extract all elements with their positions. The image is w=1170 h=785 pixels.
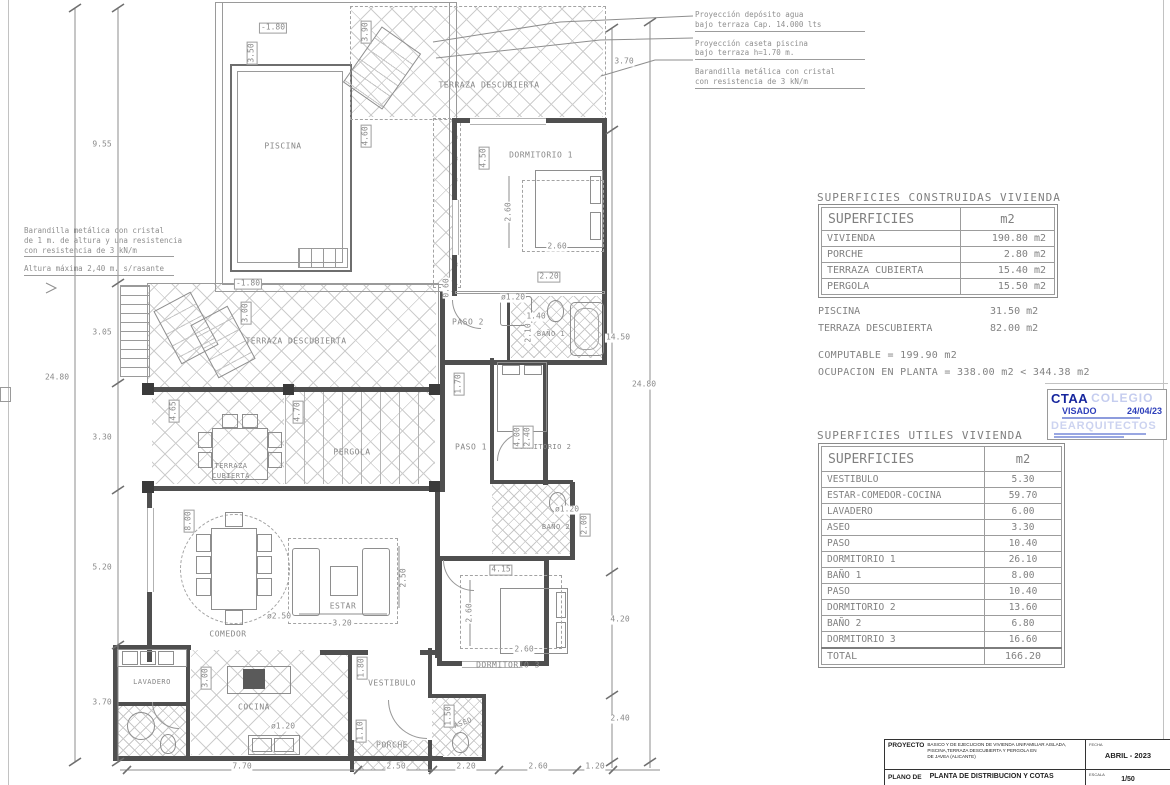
constructed-areas-title: SUPERFICIES CONSTRUIDAS VIVIENDA: [817, 191, 1061, 204]
table-cell: 10.40: [985, 584, 1062, 600]
dimension-label: 3.50: [247, 41, 258, 64]
dimension-label: 0.60: [443, 277, 452, 298]
table-row: LAVADERO6.00: [822, 504, 1062, 520]
room-label: ESTAR: [330, 602, 357, 611]
table-cell: 13.60: [985, 600, 1062, 616]
annotation-group: Barandilla metálica con cristalde 1 m. d…: [24, 226, 174, 257]
table-cell: DORMITORIO 3: [822, 632, 985, 649]
room-label: PASO 1: [455, 443, 487, 452]
table-row: TERRAZA CUBIERTA15.40 m2: [822, 263, 1055, 279]
annotation-line: Altura máxima 2,40 m. s/rasante: [24, 264, 174, 274]
table-cell: TERRAZA CUBIERTA: [822, 263, 961, 279]
fecha-value: ABRIL - 2023: [1086, 751, 1170, 760]
table-cell: BAÑO 2: [822, 616, 985, 632]
table-row: PERGOLA15.50 m2: [822, 279, 1055, 295]
table-cell: 2.80 m2: [961, 247, 1055, 263]
constructed-areas-table-frame: SUPERFICIESm2VIVIENDA190.80 m2PORCHE2.80…: [818, 204, 1058, 298]
dimension-label: 4.15: [489, 565, 512, 576]
table-row: PORCHE2.80 m2: [822, 247, 1055, 263]
stamp-smallprint-bar: [1062, 417, 1140, 419]
table-header-cell: SUPERFICIES: [822, 208, 961, 231]
table-cell: DORMITORIO 2: [822, 600, 985, 616]
table-row: DORMITORIO 316.60: [822, 632, 1062, 649]
table-cell: 3.30: [985, 520, 1062, 536]
room-label: TERRAZA DESCUBIERTA: [438, 81, 539, 90]
dimension-label: 24.80: [44, 374, 70, 383]
annotation-group: Altura máxima 2,40 m. s/rasante: [24, 264, 174, 276]
table-cell: 15.50 m2: [961, 279, 1055, 295]
table-cell: ESTAR-COMEDOR-COCINA: [822, 488, 985, 504]
stamp-watermark-top: COLEGIO: [1091, 391, 1153, 405]
ocupacion-note: OCUPACION EN PLANTA = 338.00 m2 < 344.38…: [818, 367, 1090, 378]
dimension-label: 2.60: [466, 602, 475, 623]
useful-areas-table-frame: SUPERFICIESm2VESTIBULO5.30ESTAR-COMEDOR-…: [818, 443, 1065, 668]
floor-plan: PISCINATERRAZA DESCUBIERTATERRAZA DESCUB…: [0, 0, 720, 785]
stamp-watermark-bottom: DEARQUITECTOS: [1048, 420, 1166, 432]
annotation-group: Barandilla metálica con cristalcon resis…: [695, 67, 865, 89]
dimension-label: 2.60: [505, 201, 514, 222]
table-row: PASO10.40: [822, 584, 1062, 600]
room-label: PASO 2: [452, 318, 484, 327]
dimension-label: 9.55: [91, 141, 112, 150]
table-row: DORMITORIO 126.10: [822, 552, 1062, 568]
dimension-label: 4.70: [293, 400, 304, 423]
dimension-label: 1.40: [525, 313, 546, 322]
dimension-label: 2.00: [580, 513, 591, 536]
annotation-line: de 1 m. de altura y una resistencia: [24, 236, 174, 246]
terraza-area-row: TERRAZA DESCUBIERTA 82.00 m2: [818, 323, 1038, 334]
dimension-label: 3.30: [91, 434, 112, 443]
floor-plan-sheet: PISCINATERRAZA DESCUBIERTATERRAZA DESCUB…: [0, 0, 1170, 785]
computable-note: COMPUTABLE = 199.90 m2: [818, 350, 957, 361]
table-cell: 26.10: [985, 552, 1062, 568]
annotation-line: Barandilla metálica con cristal: [695, 67, 865, 77]
dimension-label: 14.50: [605, 334, 631, 343]
table-row: TOTAL166.20: [822, 648, 1062, 665]
table-cell: LAVADERO: [822, 504, 985, 520]
dimension-label: 1.20: [584, 763, 605, 772]
dimension-label: 2.60: [527, 763, 548, 772]
project-description: BASICO Y DE EJECUCION DE VIVIENDA UNIFAM…: [927, 742, 1066, 767]
annotation-line: bajo terraza h=1.70 m.: [695, 48, 865, 58]
dimension-label: ø2.50: [266, 613, 292, 622]
project-line: DE JAVEA (ALICANTE): [927, 754, 1066, 760]
dimension-label: 1.70: [454, 372, 465, 395]
terraza-value: 82.00 m2: [990, 323, 1038, 334]
dimension-label: 4.65: [169, 399, 180, 422]
dimension-label: 2.50: [385, 763, 406, 772]
room-label: PISCINA: [264, 142, 301, 151]
dimension-label: 3.70: [91, 699, 112, 708]
annotation-line: Barandilla metálica con cristal: [24, 226, 174, 236]
annotation-line: con resistencia de 3 kN/m: [24, 246, 174, 256]
table-cell: 16.60: [985, 632, 1062, 649]
stamp-visado-label: VISADO: [1062, 406, 1097, 416]
room-label: DORMITORIO 1: [509, 151, 573, 160]
dimension-label: 4.60: [361, 124, 372, 147]
dimension-label: 4.50: [479, 146, 490, 169]
table-row: VIVIENDA190.80 m2: [822, 231, 1055, 247]
dimension-label: 2.20: [537, 272, 560, 283]
table-row: BAÑO 26.80: [822, 616, 1062, 632]
title-block-plano-row: PLANO DE PLANTA DE DISTRIBUCION Y COTAS …: [885, 770, 1170, 785]
annotation-block-left: Barandilla metálica con cristalde 1 m. d…: [24, 226, 174, 283]
dimension-label: 2.50: [400, 567, 409, 588]
plano-label: PLANO DE: [888, 774, 922, 785]
dimension-label: 8.00: [184, 509, 195, 532]
table-cell: 5.30: [985, 472, 1062, 488]
visado-stamp: CTAA COLEGIO VISADO 24/04/23 DEARQUITECT…: [1047, 389, 1167, 440]
room-label: VESTIBULO: [368, 679, 416, 688]
frame-fold-line: [1045, 383, 1168, 384]
stamp-smallprint-bar: [1054, 436, 1124, 438]
table-row: PASO10.40: [822, 536, 1062, 552]
table-cell: PASO: [822, 536, 985, 552]
piscina-area-row: PISCINA 31.50 m2: [818, 306, 1038, 317]
table-cell: 6.00: [985, 504, 1062, 520]
table-header-cell: SUPERFICIES: [822, 447, 985, 472]
annotation-group: Proyección depósito aguabajo terraza Cap…: [695, 10, 865, 32]
room-label: CUBIERTA: [212, 472, 250, 480]
escala-value: 1/50: [1086, 776, 1170, 783]
table-cell: PORCHE: [822, 247, 961, 263]
dimension-label: 4.20: [609, 616, 630, 625]
table-cell: TOTAL: [822, 648, 985, 665]
table-cell: BAÑO 1: [822, 568, 985, 584]
room-label: TERRAZA DESCUBIERTA: [245, 337, 346, 346]
table-header-cell: m2: [961, 208, 1055, 231]
table-row: BAÑO 18.00: [822, 568, 1062, 584]
useful-areas-title: SUPERFICIES UTILES VIVIENDA: [817, 429, 1023, 442]
table-cell: 190.80 m2: [961, 231, 1055, 247]
annotation-group: Proyección caseta piscinabajo terraza h=…: [695, 39, 865, 61]
dimension-label: 2.60: [546, 243, 567, 252]
dimension-label: 5.20: [91, 564, 112, 573]
dimension-label: 2.10: [525, 322, 534, 343]
room-label: PORCHE: [376, 741, 408, 750]
title-block-project-row: PROYECTO BASICO Y DE EJECUCION DE VIVIEN…: [885, 740, 1170, 770]
piscina-value: 31.50 m2: [990, 306, 1038, 317]
stamp-org: CTAA: [1051, 391, 1088, 406]
dimension-label: 2.60: [513, 646, 534, 655]
table-cell: DORMITORIO 1: [822, 552, 985, 568]
room-label: BAÑO 1: [537, 330, 565, 338]
annotation-block-top-right: Proyección depósito aguabajo terraza Cap…: [695, 10, 865, 96]
room-label: LAVADERO: [133, 678, 171, 686]
dimension-label: 1.80: [357, 656, 368, 679]
title-block: PROYECTO BASICO Y DE EJECUCION DE VIVIEN…: [884, 739, 1170, 785]
dimension-label: 3.90: [361, 20, 372, 43]
annotation-line: con resistencia de 3 kN/m: [695, 77, 865, 87]
table-cell: ASEO: [822, 520, 985, 536]
room-label: PERGOLA: [333, 448, 370, 457]
dimension-label: 1.50: [444, 704, 455, 727]
dimension-label: 3.00: [241, 301, 252, 324]
fecha-label: FECHA: [1089, 742, 1103, 747]
dimension-label: 2.20: [455, 763, 476, 772]
room-label: DORMITORIO 3: [476, 661, 540, 670]
table-header-cell: m2: [985, 447, 1062, 472]
table-cell: 6.80: [985, 616, 1062, 632]
dimension-label: 2.40: [523, 425, 534, 448]
dimension-label: 3.00: [201, 666, 212, 689]
dimension-label: 3.70: [613, 58, 634, 67]
piscina-label: PISCINA: [818, 306, 990, 317]
dimension-label: ø1.20: [554, 506, 580, 515]
dimension-label: 3.20: [331, 620, 352, 629]
annotation-line: Proyección caseta piscina: [695, 39, 865, 49]
table-cell: VESTIBULO: [822, 472, 985, 488]
dimension-label: ø1.20: [500, 294, 526, 303]
project-label: PROYECTO: [888, 742, 924, 767]
table-cell: 15.40 m2: [961, 263, 1055, 279]
table-cell: 166.20: [985, 648, 1062, 665]
table-row: DORMITORIO 213.60: [822, 600, 1062, 616]
useful-areas-table: SUPERFICIESm2VESTIBULO5.30ESTAR-COMEDOR-…: [821, 446, 1062, 665]
table-cell: VIVIENDA: [822, 231, 961, 247]
plano-value: PLANTA DE DISTRIBUCION Y COTAS: [930, 773, 1054, 785]
room-label: COMEDOR: [209, 630, 246, 639]
dimension-label: 1.10: [356, 719, 367, 742]
dimension-label: 3.05: [91, 329, 112, 338]
constructed-areas-table: SUPERFICIESm2VIVIENDA190.80 m2PORCHE2.80…: [821, 207, 1055, 295]
stamp-smallprint-bar: [1054, 433, 1146, 435]
table-row: ASEO3.30: [822, 520, 1062, 536]
dimension-label: -1.80: [234, 279, 262, 290]
room-label: TERRAZA: [214, 462, 247, 470]
table-cell: PERGOLA: [822, 279, 961, 295]
table-row: ESTAR-COMEDOR-COCINA59.70: [822, 488, 1062, 504]
table-cell: 10.40: [985, 536, 1062, 552]
dimension-label: 7.70: [231, 763, 252, 772]
table-row: VESTIBULO5.30: [822, 472, 1062, 488]
annotation-line: Proyección depósito agua: [695, 10, 865, 20]
table-cell: 59.70: [985, 488, 1062, 504]
room-label: BAÑO 2: [542, 523, 570, 531]
stamp-date: 24/04/23: [1127, 406, 1162, 416]
terraza-label: TERRAZA DESCUBIERTA: [818, 323, 990, 334]
room-label: COCINA: [238, 703, 270, 712]
dimension-label: ø1.20: [270, 723, 296, 732]
dimension-label: -1.80: [259, 23, 287, 34]
table-cell: 8.00: [985, 568, 1062, 584]
dimension-label: 2.40: [609, 715, 630, 724]
dimension-label: 24.80: [631, 381, 657, 390]
table-cell: PASO: [822, 584, 985, 600]
annotation-line: bajo terraza Cap. 14.000 lts: [695, 20, 865, 30]
